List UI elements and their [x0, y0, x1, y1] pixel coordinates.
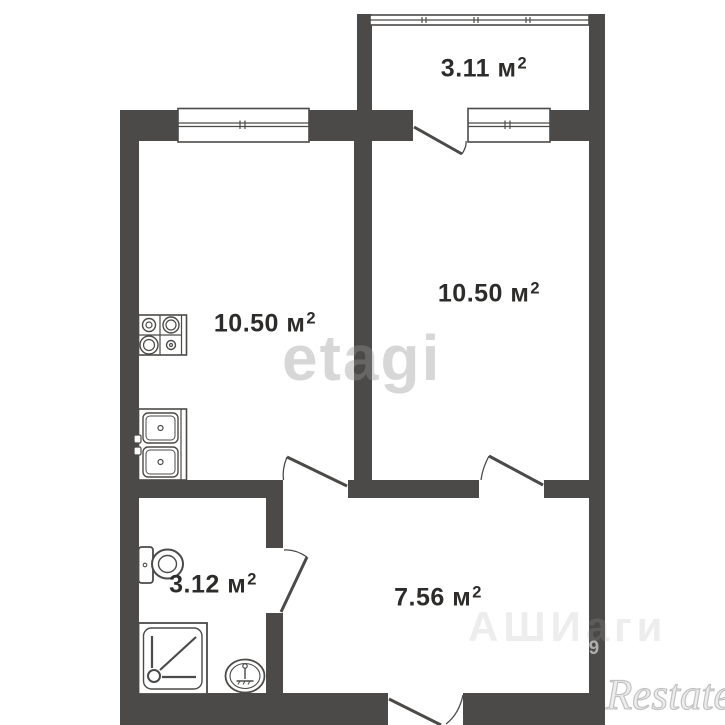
kitchen-sink-icon: [134, 409, 187, 480]
wall-mid-horizontal-b: [348, 480, 479, 498]
watermark-wall-digits: 39: [578, 639, 599, 658]
wall-bathroom-lower: [266, 613, 283, 693]
wall-bottom-b: [463, 693, 605, 725]
balcony-door: [414, 127, 466, 154]
wall-bottom-a: [120, 693, 388, 725]
area-sup: 2: [472, 583, 482, 601]
floor-plan-screenshot: etagi АШИаги 39 Restate 3.11 м2 10.50 м2…: [0, 0, 725, 725]
area-value: 10.50 м: [214, 310, 306, 338]
kitchen-door: [283, 457, 347, 486]
wall-balcony-right: [589, 14, 605, 110]
area-sup: 2: [247, 570, 257, 588]
wall-mid-horizontal-c: [544, 480, 589, 498]
washbasin-icon: [226, 660, 265, 693]
area-label-bathroom: 3.12 м2: [169, 570, 257, 599]
area-value: 3.12 м: [169, 571, 246, 599]
wall-top-b: [309, 110, 413, 141]
area-sup: 2: [530, 279, 540, 297]
watermark-restate: Restate: [606, 674, 725, 717]
balcony-window: [370, 15, 589, 25]
area-sup: 2: [306, 309, 316, 327]
area-label-kitchen: 10.50 м2: [214, 309, 316, 338]
shower-tray-icon: [139, 623, 208, 694]
wall-left: [120, 110, 139, 725]
bathroom-door: [281, 550, 307, 612]
room-window: [468, 109, 550, 143]
area-value: 7.56 м: [394, 584, 471, 612]
area-label-room: 10.50 м2: [438, 279, 540, 308]
wall-bathroom-upper: [266, 498, 283, 548]
entrance-door: [389, 695, 463, 725]
area-sup: 2: [518, 54, 528, 72]
room-door: [481, 456, 543, 485]
stove-icon: [139, 315, 187, 355]
wall-mid-horizontal-a: [139, 480, 283, 498]
wall-middle-vertical: [354, 141, 372, 498]
area-label-balcony: 3.11 м2: [441, 54, 527, 83]
watermark-faint-text: АШИаги: [468, 606, 667, 648]
kitchen-window: [178, 109, 309, 143]
area-value: 10.50 м: [438, 280, 530, 308]
wall-balcony-left: [357, 14, 372, 110]
area-label-hallway: 7.56 м2: [394, 583, 482, 612]
area-value: 3.11 м: [441, 55, 517, 83]
